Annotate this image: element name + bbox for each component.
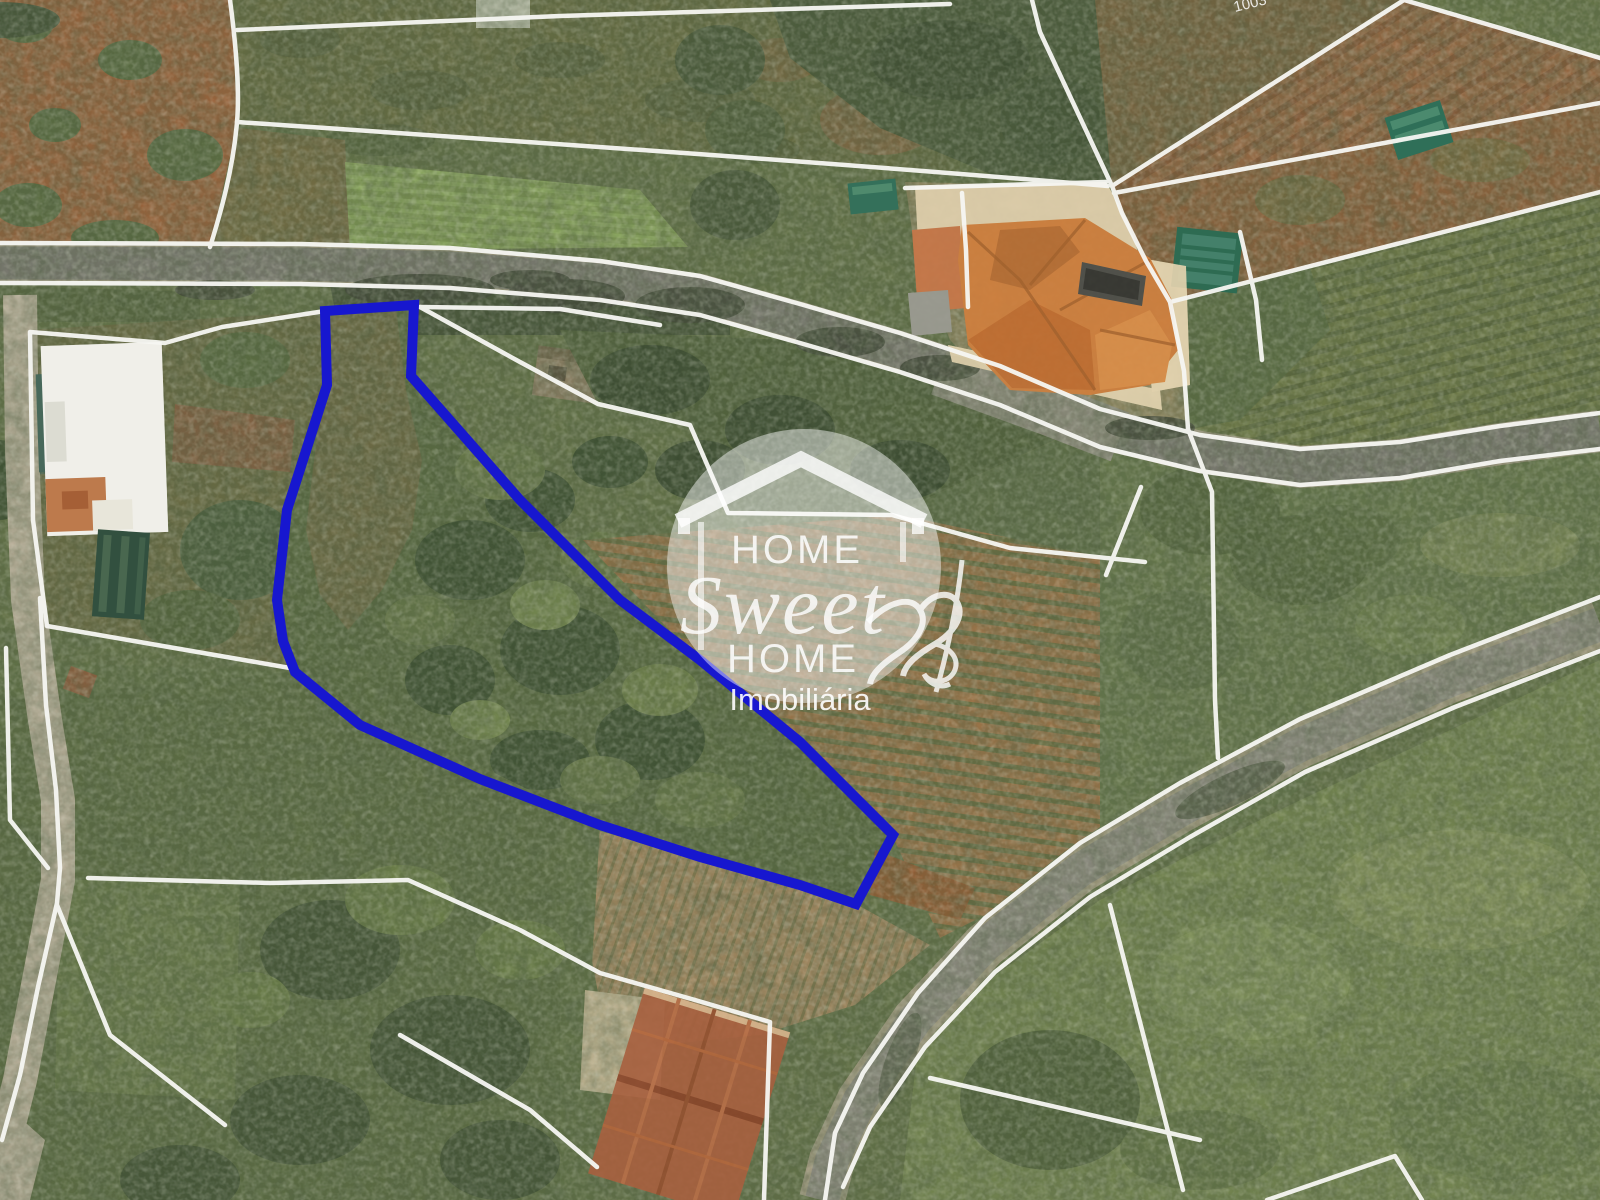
svg-text:Imobiliária: Imobiliária	[729, 682, 871, 717]
svg-text:HOME: HOME	[727, 637, 859, 681]
